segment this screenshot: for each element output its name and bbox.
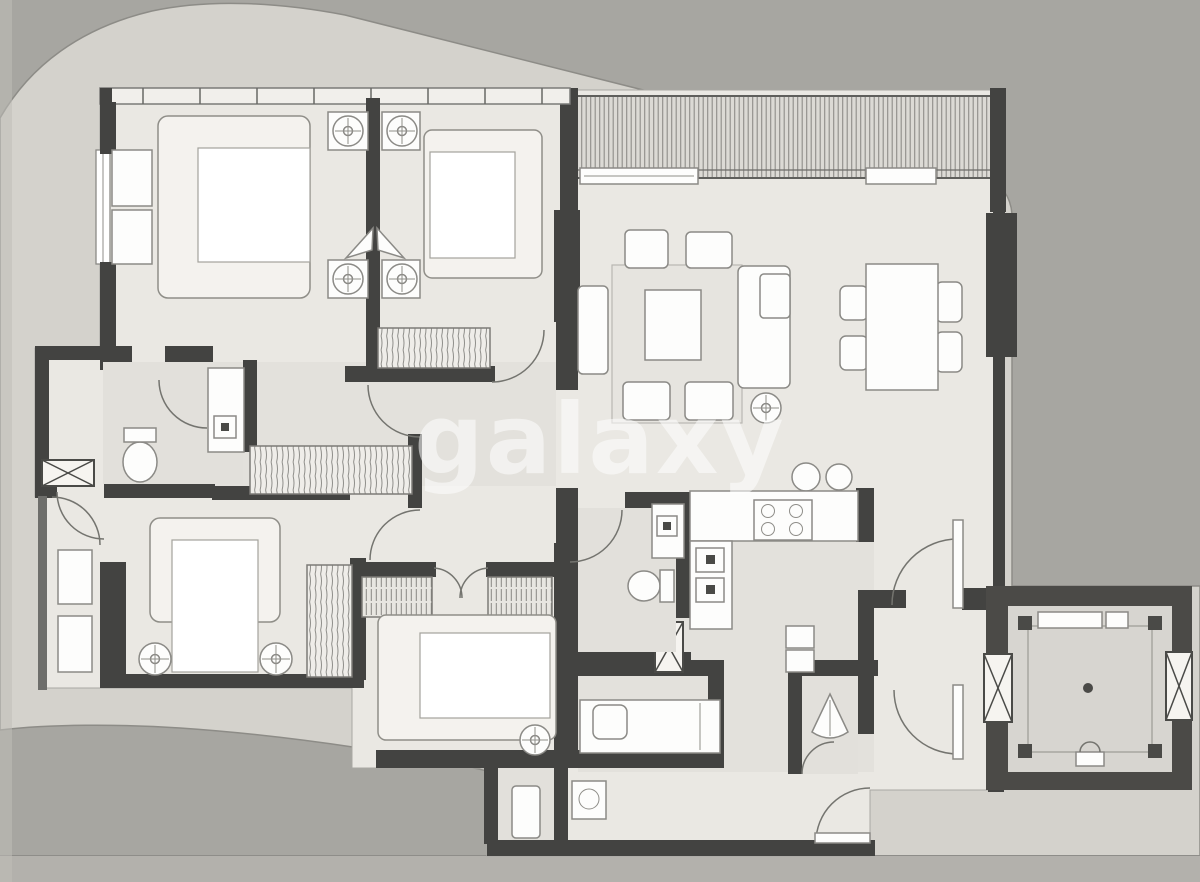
coffee-table [645, 290, 701, 360]
closet-inner-wall [100, 562, 126, 688]
bottom-band [0, 855, 1200, 882]
lamp-icon [387, 116, 417, 146]
shaft-x-box [1166, 652, 1192, 720]
bedroom4-top-wall-a [350, 562, 436, 577]
dining-table [866, 264, 938, 390]
entry-stub-wall [858, 590, 906, 608]
bath1-right-wall [243, 360, 257, 452]
lamp-icon [139, 643, 171, 675]
elevator-core [984, 586, 1192, 790]
dining-chair [840, 286, 868, 320]
desk-chair [593, 705, 627, 739]
bar-stool [826, 464, 852, 490]
bathroom-2 [570, 504, 684, 652]
shaft-x-box [984, 654, 1012, 722]
lamp-icon [333, 264, 363, 294]
sofa-seat [625, 230, 668, 268]
lamp-icon [260, 643, 292, 675]
study-room [580, 700, 720, 753]
toilet-icon [628, 571, 660, 601]
study-top-wall [577, 660, 724, 676]
sink-drain [706, 585, 715, 594]
dining-chair [936, 282, 962, 322]
bed-3-sheet [172, 540, 258, 672]
corridor-wardrobe-hatched [250, 446, 412, 494]
entrance-door-leaf [953, 520, 963, 608]
foyer-cabinet [786, 626, 814, 648]
window-seat-cushion [112, 150, 152, 206]
floor-plan-canvas: galaxy [0, 0, 1200, 882]
corridor-bottom-wall [104, 484, 215, 498]
sink-drain [221, 423, 229, 431]
wardrobe-hatched [378, 328, 490, 368]
balcony-post-right [990, 88, 1006, 212]
powder-left-wall [788, 674, 802, 774]
closet-shelf [58, 616, 92, 672]
lift-call-panel [1076, 752, 1104, 766]
watermark-text: galaxy [414, 383, 785, 496]
top-window-wall [100, 88, 570, 104]
center-dot [1083, 683, 1093, 693]
balcony-post-left [560, 88, 578, 212]
dining-chair [936, 332, 962, 372]
vanity-counter [208, 368, 244, 452]
chaise-cushion [760, 274, 790, 318]
lift-door-mechanism [1106, 612, 1128, 628]
bed-4-sheet [420, 633, 550, 718]
shower-tray [512, 786, 540, 838]
sofa-seat [686, 232, 732, 268]
bed-2-sheet [430, 152, 515, 258]
left-edge-strip [0, 0, 12, 882]
bed-1-sheet [198, 148, 310, 262]
window-seat-cushion [112, 210, 152, 264]
closet-shelf [58, 550, 92, 604]
corner-block [1148, 744, 1162, 758]
headboard-cushion [488, 577, 552, 617]
lamp-icon [387, 264, 417, 294]
dining-chair [840, 336, 868, 370]
foyer-cabinet [786, 650, 814, 672]
corner-block [1148, 616, 1162, 630]
sink-drain [663, 522, 671, 530]
toilet-tank [660, 570, 674, 602]
door-leaf [953, 685, 963, 759]
powder-room [802, 676, 858, 774]
toilet-icon [123, 442, 157, 482]
headboard-cushion [362, 577, 432, 617]
stove [754, 500, 812, 540]
lamp-icon [333, 116, 363, 146]
floor-plan-image: galaxy [0, 0, 1200, 882]
sink-drain [706, 555, 715, 564]
bedroom1-bottom-wall-b [165, 346, 213, 362]
lift-door-mechanism [1038, 612, 1102, 628]
door-leaf [815, 833, 870, 843]
corridor-right-wall [858, 592, 874, 734]
armchair [578, 286, 608, 374]
bedroom2-right-pillar [554, 210, 580, 322]
corner-block [1018, 616, 1032, 630]
sliding-door-sill-2 [866, 168, 936, 184]
bedroom4-right-wall [554, 543, 578, 753]
right-pillar [986, 213, 1017, 357]
balcony-railing [566, 96, 1002, 178]
washbasin-unit [572, 781, 606, 819]
lamp-icon [520, 725, 550, 755]
closet-outer-wall [38, 496, 47, 690]
bar-stool [792, 463, 820, 491]
toilet-tank [124, 428, 156, 442]
corner-block [1018, 744, 1032, 758]
shaft-x-box [42, 460, 94, 486]
wardrobe-hatched [307, 565, 352, 677]
